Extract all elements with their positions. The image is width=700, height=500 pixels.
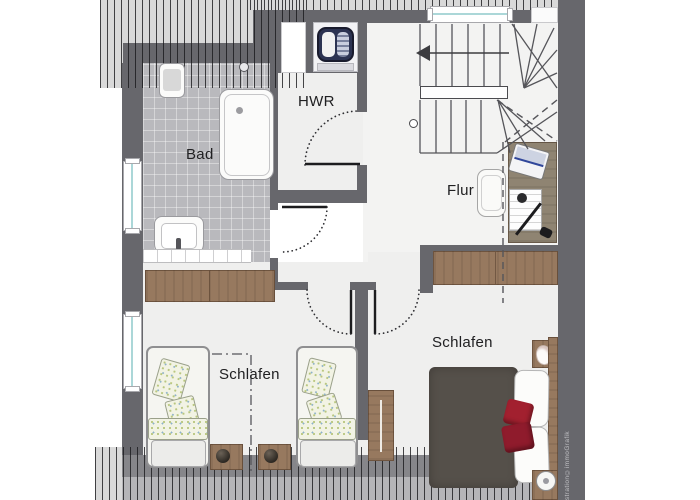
wardrobe-right-bedroom — [433, 251, 558, 285]
wardrobe-left-divider — [209, 271, 210, 301]
single-bed-1-blanket — [148, 418, 208, 440]
hwr-floor — [277, 73, 367, 190]
window-bath-cap-bottom — [125, 228, 140, 234]
wall-divider-top — [350, 282, 376, 290]
window-stairs-glass — [433, 13, 507, 15]
bathtub-inner — [224, 94, 270, 176]
window-corner-top — [531, 7, 558, 23]
single-bed-1-foot — [151, 440, 206, 467]
washer-drum — [322, 32, 335, 57]
bathtub-icon — [219, 89, 274, 180]
room-label-hwr: HWR — [298, 93, 335, 110]
window-stairs-cap-left — [427, 8, 433, 21]
window-bath-glass — [131, 163, 133, 229]
wall-hwr-right-upper — [357, 73, 367, 112]
bathroom-cabinet-inner — [163, 69, 181, 91]
room-label-schlafen-left: Schlafen — [219, 366, 280, 383]
wall-mid-left — [270, 282, 308, 290]
red-cushion-2 — [501, 422, 535, 454]
single-bed-2-blanket — [298, 418, 356, 440]
wall-connector — [420, 245, 433, 293]
hwr-roof-window — [281, 22, 306, 73]
office-chair-back — [481, 175, 502, 211]
tall-cabinet-handle — [380, 400, 382, 452]
wall-left — [122, 63, 143, 455]
window-bedroom-cap-top — [125, 311, 140, 317]
room-label-schlafen-right: Schlafen — [432, 334, 493, 351]
window-bedroom-cap-bottom — [125, 386, 140, 392]
watermark: Illustration©immoGrafik — [564, 418, 576, 500]
wardrobe-right-divider — [495, 252, 496, 284]
single-bed-2-foot — [300, 440, 356, 467]
roof-slope-hatch-topleft — [100, 0, 310, 88]
door-arc-bad — [282, 207, 327, 252]
plant-icon-1 — [216, 449, 230, 463]
window-bath-cap-top — [125, 158, 140, 164]
bed-lamp-center — [543, 478, 549, 484]
bath-faucet-icon — [239, 62, 249, 72]
window-bedroom-glass — [131, 316, 133, 387]
washer-front — [317, 63, 354, 71]
stair-handrail — [420, 86, 508, 99]
window-stairs-cap-right — [507, 8, 513, 21]
room-label-flur: Flur — [447, 182, 474, 199]
tall-cabinet — [368, 390, 394, 461]
stair-newel-post — [409, 119, 418, 128]
laptop-screen — [514, 146, 546, 167]
desk-lamp-head — [517, 193, 527, 203]
washing-machine-icon — [317, 27, 354, 62]
floor-plan: Bad HWR Flur Schlafen Schlafen Illustrat… — [0, 0, 700, 500]
bath-drain-icon — [236, 107, 243, 114]
plant-icon-2 — [264, 449, 278, 463]
bath-counter — [143, 249, 251, 263]
bathroom-cabinet — [159, 63, 185, 98]
wall-hwr-bottom — [277, 190, 367, 203]
washer-drum2 — [337, 32, 349, 57]
office-chair — [477, 169, 506, 217]
wardrobe-left-bedroom — [145, 270, 275, 302]
room-label-bad: Bad — [186, 146, 214, 163]
bed-lamp-icon — [536, 471, 556, 491]
